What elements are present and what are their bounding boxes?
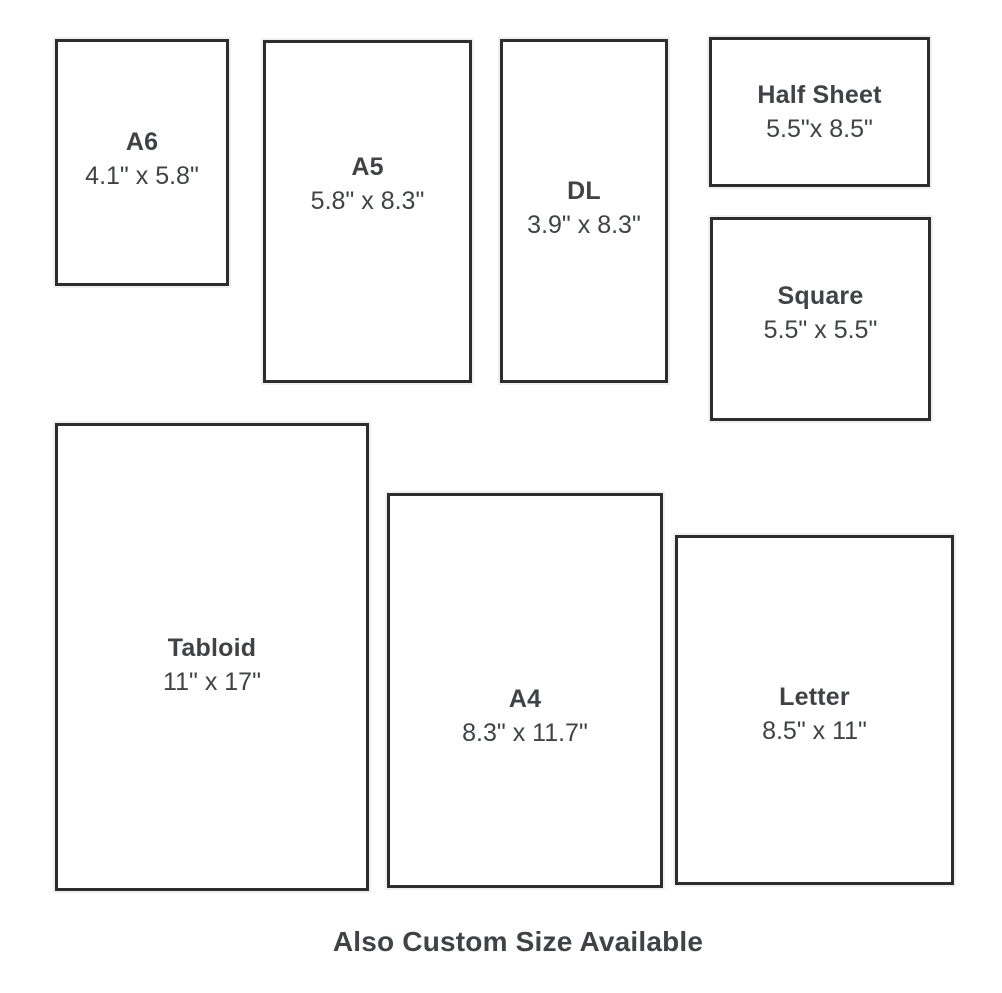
paper-box-square: Square 5.5" x 5.5" [710,217,931,421]
paper-box-a6: A6 4.1" x 5.8" [55,39,229,286]
paper-dimensions-half-sheet: 5.5"x 8.5" [757,112,881,146]
paper-label-letter: Letter 8.5" x 11" [762,680,867,748]
paper-dimensions-square: 5.5" x 5.5" [764,313,878,347]
paper-dimensions-dl: 3.9" x 8.3" [527,208,641,242]
paper-name-a5: A5 [311,150,425,184]
paper-label-half-sheet: Half Sheet 5.5"x 8.5" [757,78,881,146]
paper-label-square: Square 5.5" x 5.5" [764,279,878,347]
paper-box-letter: Letter 8.5" x 11" [675,535,954,885]
paper-dimensions-letter: 8.5" x 11" [762,714,867,748]
paper-box-a4: A4 8.3" x 11.7" [387,493,663,888]
paper-dimensions-a4: 8.3" x 11.7" [462,716,588,750]
paper-name-square: Square [764,279,878,313]
paper-box-dl: DL 3.9" x 8.3" [500,39,668,383]
paper-label-a6: A6 4.1" x 5.8" [85,125,199,193]
paper-box-tabloid: Tabloid 11" x 17" [55,423,369,891]
paper-name-letter: Letter [762,680,867,714]
paper-dimensions-a6: 4.1" x 5.8" [85,159,199,193]
paper-name-dl: DL [527,174,641,208]
paper-box-half-sheet: Half Sheet 5.5"x 8.5" [709,37,930,187]
paper-box-a5: A5 5.8" x 8.3" [263,40,472,383]
paper-name-a6: A6 [85,125,199,159]
paper-name-a4: A4 [462,682,588,716]
paper-dimensions-tabloid: 11" x 17" [163,665,261,699]
paper-label-dl: DL 3.9" x 8.3" [527,174,641,242]
paper-name-tabloid: Tabloid [163,631,261,665]
custom-size-note: Also Custom Size Available [0,926,1002,958]
paper-label-tabloid: Tabloid 11" x 17" [163,631,261,699]
paper-name-half-sheet: Half Sheet [757,78,881,112]
paper-label-a4: A4 8.3" x 11.7" [462,682,588,750]
paper-dimensions-a5: 5.8" x 8.3" [311,184,425,218]
paper-label-a5: A5 5.8" x 8.3" [311,150,425,218]
paper-size-diagram: A6 4.1" x 5.8" A5 5.8" x 8.3" DL 3.9" x … [0,0,1002,993]
